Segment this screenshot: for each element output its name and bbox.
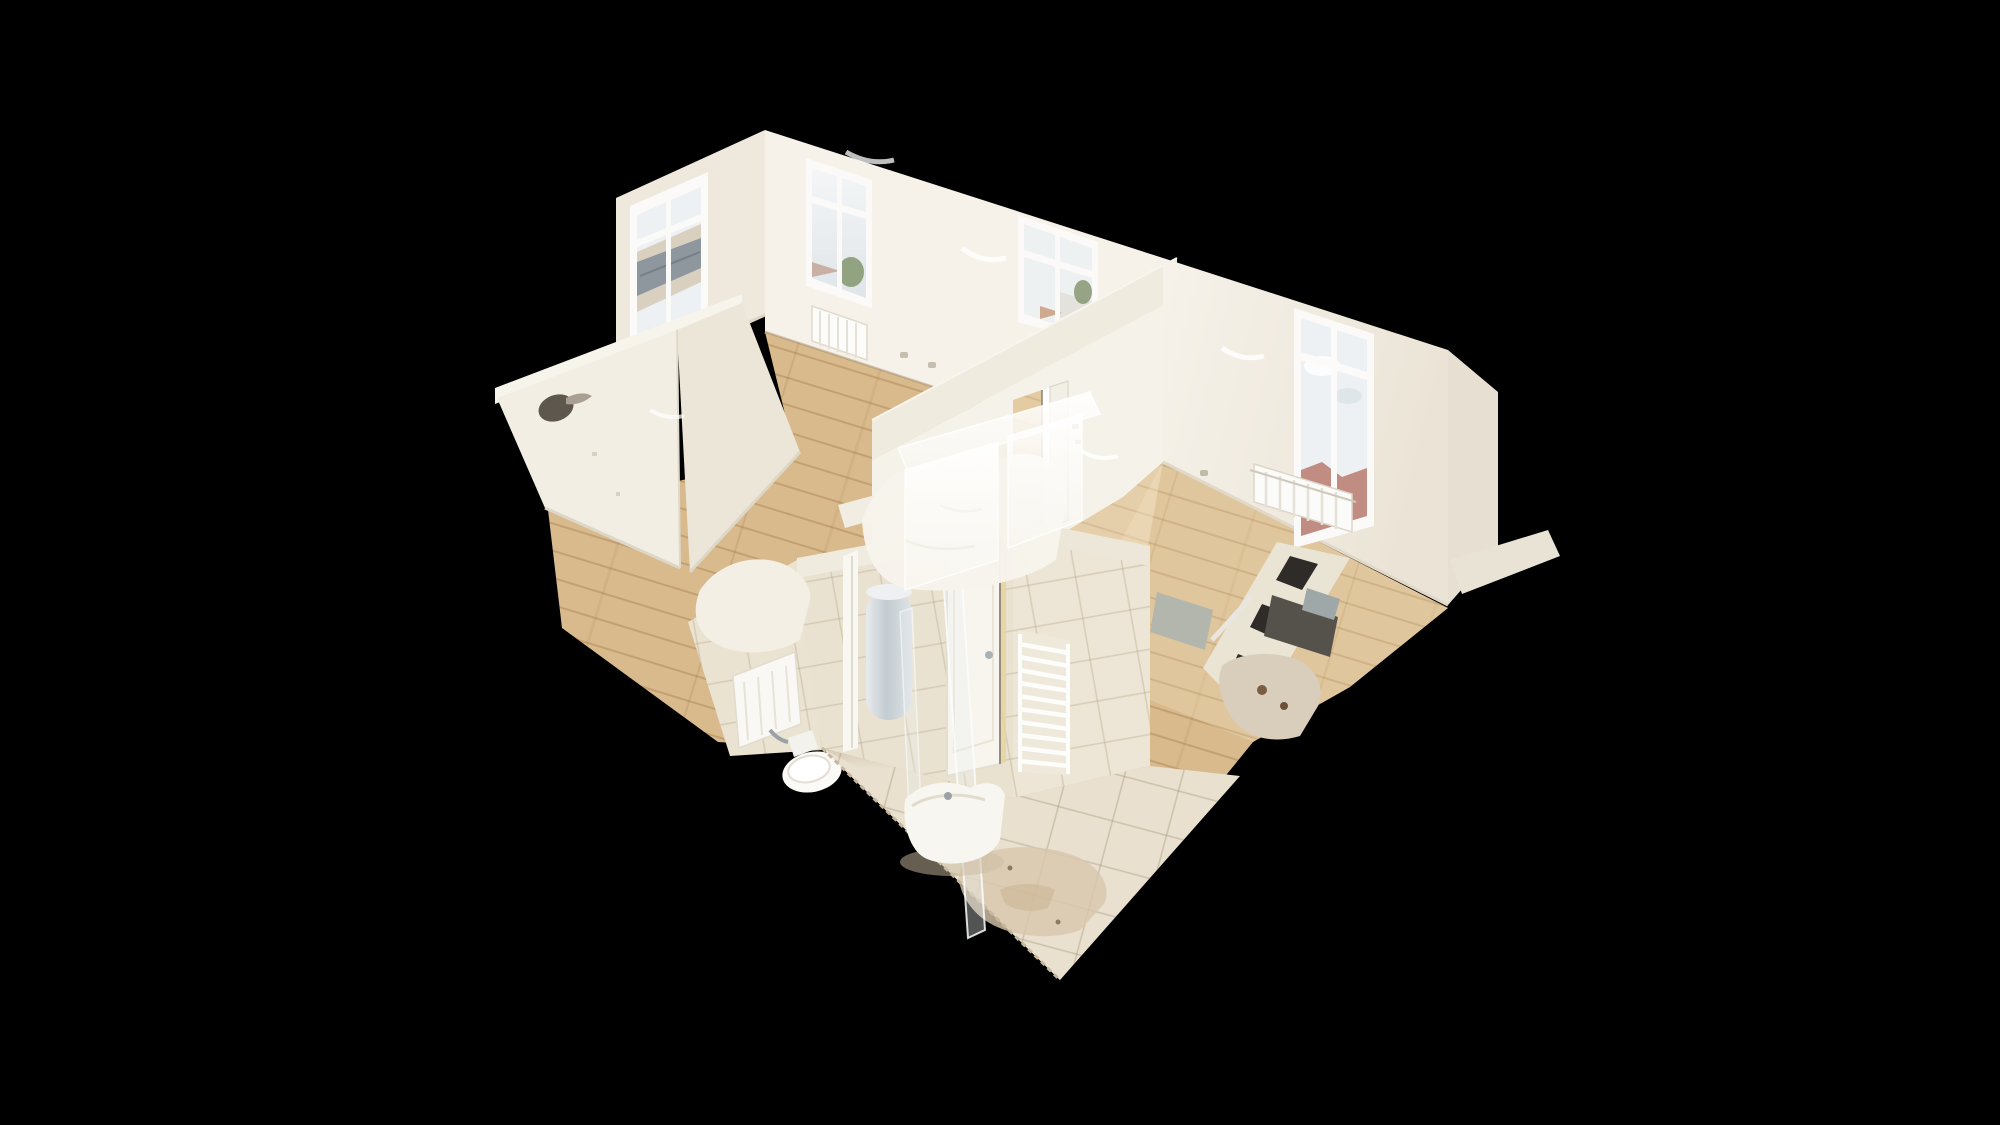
wall-speck-2 (616, 492, 620, 496)
wall-speck-1 (592, 452, 597, 456)
living-room-window-back-1 (806, 158, 872, 308)
dollhouse-3d-view[interactable] (0, 0, 2000, 1125)
window-mullion (837, 176, 842, 290)
screenshot-root: { "app": { "name": "3d-virtual-tour-view… (0, 0, 2000, 1125)
towel-radiator (1018, 630, 1070, 775)
window-mullion (666, 200, 671, 340)
counter-speck-2 (1280, 702, 1288, 710)
tour-viewport[interactable] (0, 0, 2000, 1125)
cloud-in-glass-2 (1334, 388, 1362, 404)
tree-in-glass (1074, 280, 1092, 304)
power-outlet-1 (900, 352, 908, 358)
window-mullion (1055, 234, 1060, 330)
sink-tap (944, 792, 952, 800)
door-handle (985, 651, 993, 659)
power-outlet-2 (928, 362, 936, 368)
floor-speck-3 (1056, 920, 1061, 925)
floor-speck-2 (1008, 866, 1013, 871)
bathroom-doorframe-strip (843, 550, 858, 752)
counter-speck-1 (1257, 685, 1267, 695)
sink-vanity (900, 783, 1005, 876)
power-outlet-3 (1200, 470, 1208, 476)
